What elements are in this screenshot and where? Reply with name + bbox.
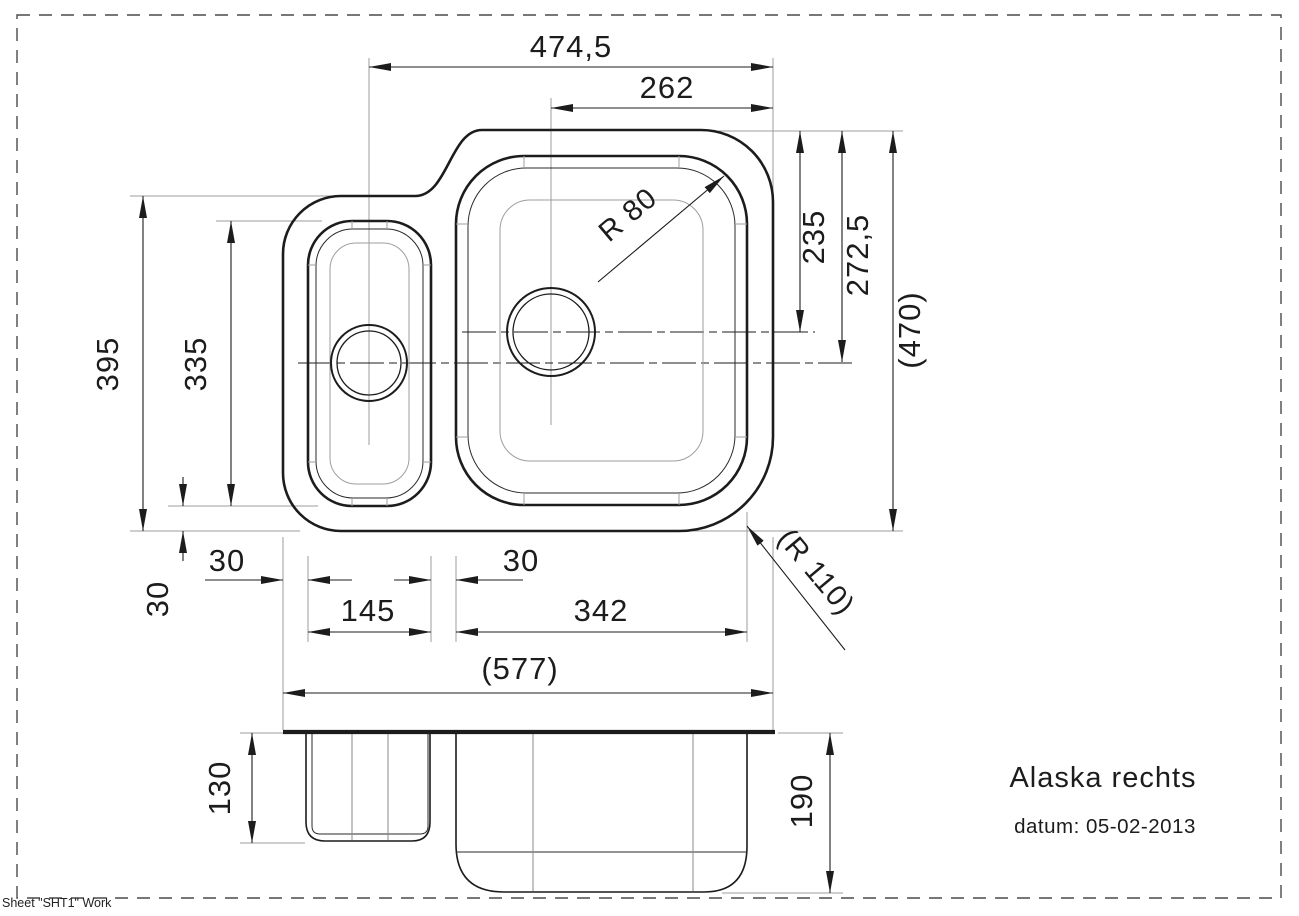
side-extension-lines <box>240 733 843 893</box>
dimensions-top-view: 474,5 262 235 272,5 (470) 395 335 30 30 … <box>90 29 927 693</box>
dim-label-divider: 30 <box>503 543 539 578</box>
dim-label-large-bowl-depth-side: 190 <box>784 774 819 829</box>
dim-label-small-drain-top: 272,5 <box>840 214 875 297</box>
dim-label-drain-to-right: 262 <box>640 70 695 105</box>
dim-label-large-bowl-width: 342 <box>574 593 629 628</box>
dim-label-small-bowl-width: 145 <box>341 593 396 628</box>
side-view: 130 190 <box>202 732 843 893</box>
dim-label-left-section-depth: 395 <box>90 337 125 392</box>
large-bowl-bottom <box>500 200 703 461</box>
dim-label-bowl-corner-radius: R 80 <box>593 182 664 248</box>
dimensions-side-view: 130 190 <box>202 733 830 893</box>
dim-label-rim-left: 30 <box>209 543 245 578</box>
side-large-bowl <box>456 734 747 892</box>
extension-lines <box>130 58 903 730</box>
sheet-label: Sheet "SHT1" Work <box>2 896 112 910</box>
dim-label-overall-width: 474,5 <box>530 29 613 64</box>
drawing-date: datum: 05-02-2013 <box>1014 815 1196 838</box>
dim-label-outer-corner-radius: (R 110) <box>771 523 861 621</box>
technical-drawing: 474,5 262 235 272,5 (470) 395 335 30 30 … <box>0 0 1299 916</box>
side-small-bowl-inner <box>312 734 428 834</box>
dim-label-large-drain-top: 235 <box>796 210 831 265</box>
dim-label-small-bowl-depth-side: 130 <box>202 761 237 816</box>
dim-label-overall-depth-ref: (470) <box>892 291 927 368</box>
product-name: Alaska rechts <box>1009 762 1196 794</box>
top-view: 474,5 262 235 272,5 (470) 395 335 30 30 … <box>90 29 927 730</box>
side-small-bowl <box>306 734 430 841</box>
dim-label-rim-bottom: 30 <box>140 581 175 617</box>
drawing-sheet: 474,5 262 235 272,5 (470) 395 335 30 30 … <box>0 0 1299 916</box>
title-block: Alaska rechts datum: 05-02-2013 <box>1009 762 1196 838</box>
dim-label-small-bowl-depth-top: 335 <box>178 337 213 392</box>
dim-label-overall-width-ref: (577) <box>481 651 558 686</box>
sink-outer-contour <box>283 130 773 531</box>
